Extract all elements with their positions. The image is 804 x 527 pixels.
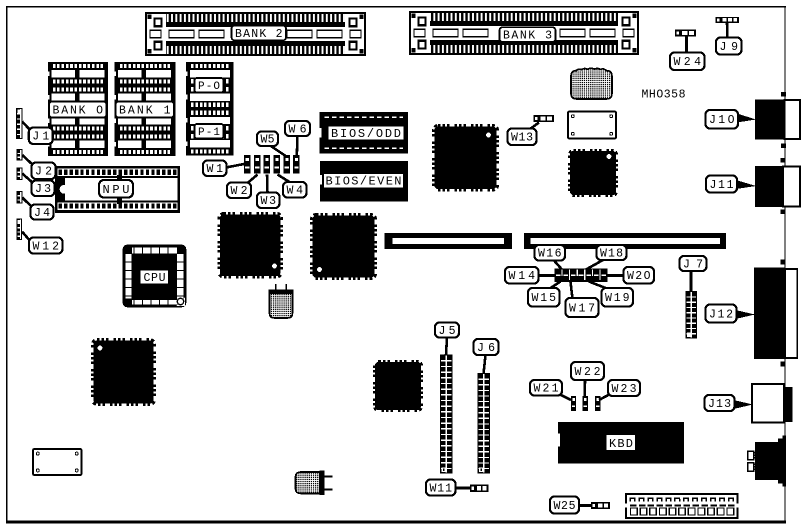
svg-text:J13: J13: [708, 398, 731, 411]
svg-text:W22: W22: [575, 366, 601, 379]
svg-text:J12: J12: [709, 308, 733, 321]
svg-text:W19: W19: [605, 292, 630, 305]
svg-text:W23: W23: [612, 383, 637, 396]
svg-text:W18: W18: [600, 247, 623, 260]
svg-text:BANK 2: BANK 2: [235, 28, 283, 41]
svg-text:W5: W5: [261, 134, 275, 147]
svg-text:W14: W14: [509, 270, 536, 283]
svg-text:NPU: NPU: [103, 183, 130, 197]
svg-text:KBD: KBD: [609, 437, 633, 451]
svg-text:P-O: P-O: [198, 81, 220, 93]
svg-text:W17: W17: [569, 302, 595, 315]
svg-text:W16: W16: [538, 248, 562, 261]
svg-text:BIOS/ODD: BIOS/ODD: [331, 127, 401, 141]
svg-text:J1O: J1O: [709, 114, 735, 127]
svg-text:J11: J11: [710, 179, 734, 192]
svg-text:W25: W25: [554, 500, 576, 513]
svg-text:W12: W12: [33, 240, 60, 253]
svg-text:W21: W21: [534, 383, 559, 396]
svg-text:W13: W13: [511, 132, 533, 145]
svg-text:W15: W15: [532, 292, 557, 305]
svg-text:W2O: W2O: [627, 270, 651, 283]
svg-text:P-1: P-1: [198, 127, 220, 139]
svg-text:BIOS/EVEN: BIOS/EVEN: [326, 175, 402, 189]
svg-text:W24: W24: [674, 56, 702, 69]
svg-text:CPU: CPU: [144, 272, 166, 285]
svg-text:MHO358: MHO358: [642, 89, 686, 102]
svg-text:W11: W11: [430, 482, 453, 495]
svg-text:W3: W3: [261, 195, 277, 208]
